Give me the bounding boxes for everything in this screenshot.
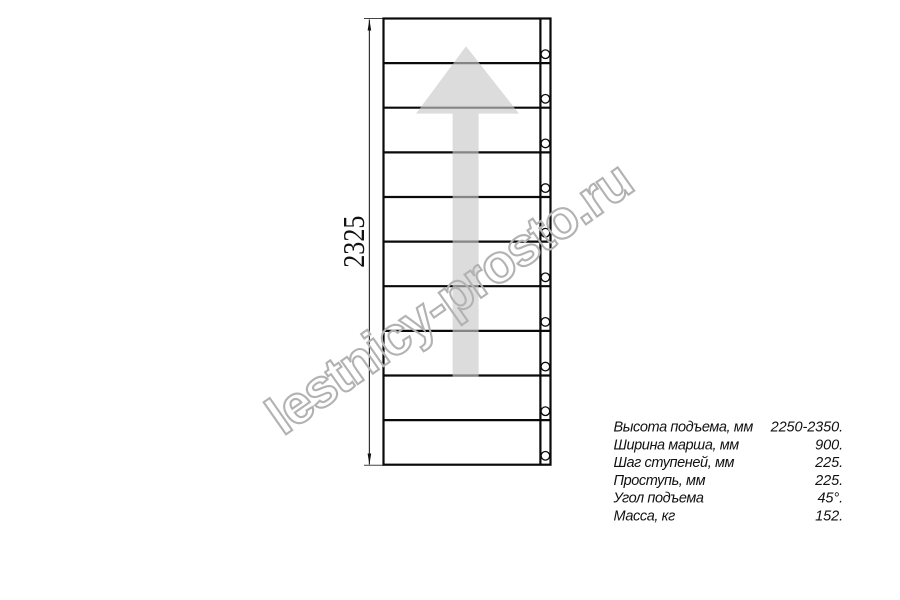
svg-text:Ширина марша, мм: Ширина марша, мм: [614, 437, 740, 453]
svg-text:900.: 900.: [815, 437, 843, 453]
svg-text:225.: 225.: [814, 473, 843, 489]
svg-text:152.: 152.: [815, 508, 843, 524]
svg-text:2250-2350.: 2250-2350.: [770, 420, 843, 436]
svg-text:Масса, кг: Масса, кг: [614, 508, 676, 524]
svg-text:2325: 2325: [337, 216, 372, 268]
svg-text:Высота подъема, мм: Высота подъема, мм: [614, 420, 754, 436]
svg-text:Проступь, мм: Проступь, мм: [614, 473, 706, 489]
svg-text:Угол подъема: Угол подъема: [613, 491, 704, 507]
svg-text:225.: 225.: [814, 455, 843, 471]
svg-text:Шаг ступеней, мм: Шаг ступеней, мм: [614, 455, 735, 471]
svg-text:45°.: 45°.: [817, 491, 843, 507]
